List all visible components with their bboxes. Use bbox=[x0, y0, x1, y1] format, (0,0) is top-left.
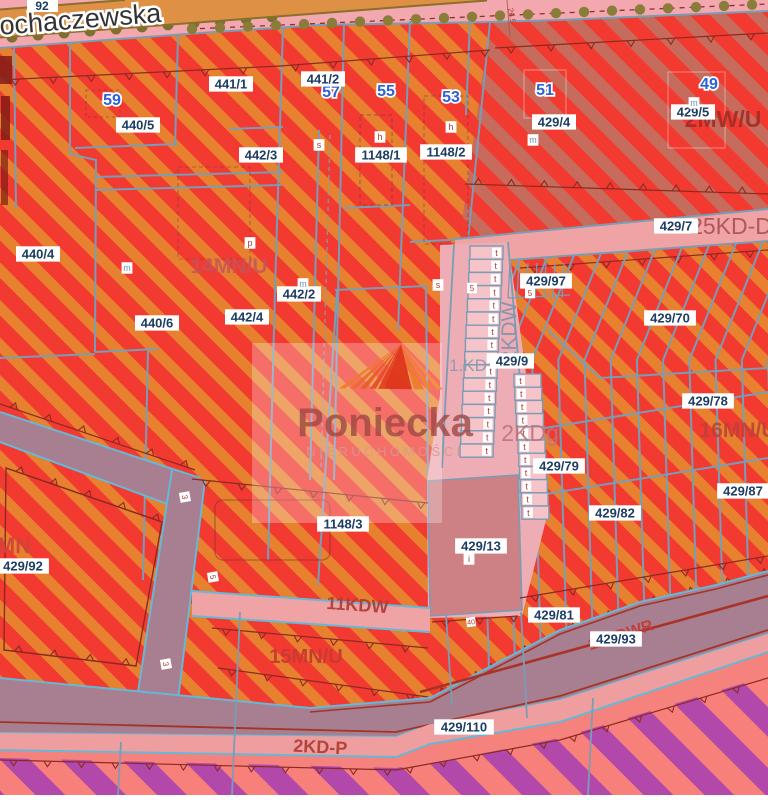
svg-text:429/9: 429/9 bbox=[496, 354, 529, 369]
svg-text:51: 51 bbox=[536, 82, 554, 99]
svg-text:429/13: 429/13 bbox=[461, 539, 501, 554]
svg-text:429/93: 429/93 bbox=[596, 632, 636, 647]
svg-text:s: s bbox=[436, 280, 441, 290]
svg-text:16MN/U: 16MN/U bbox=[699, 419, 768, 442]
svg-text:14MN/U: 14MN/U bbox=[190, 255, 267, 278]
svg-text:59: 59 bbox=[103, 92, 121, 109]
svg-text:5: 5 bbox=[528, 289, 533, 298]
svg-text:5: 5 bbox=[470, 284, 475, 293]
svg-text:429/70: 429/70 bbox=[650, 311, 690, 326]
svg-text:m: m bbox=[690, 98, 698, 108]
svg-text:441/1: 441/1 bbox=[215, 77, 248, 92]
svg-text:2KDg: 2KDg bbox=[501, 420, 559, 446]
svg-text:1148/2: 1148/2 bbox=[426, 145, 465, 160]
svg-text:m: m bbox=[123, 263, 131, 273]
svg-text:429/79: 429/79 bbox=[539, 459, 579, 474]
svg-text:429/81: 429/81 bbox=[534, 608, 574, 623]
svg-text:53: 53 bbox=[442, 89, 460, 106]
svg-text:49: 49 bbox=[700, 76, 718, 93]
svg-text:h: h bbox=[448, 122, 453, 132]
svg-text:429/110: 429/110 bbox=[441, 720, 487, 735]
svg-text:NIERUCHOMOŚCI: NIERUCHOMOŚCI bbox=[306, 444, 463, 459]
svg-text:441/2: 441/2 bbox=[307, 72, 340, 87]
svg-text:40: 40 bbox=[467, 619, 476, 627]
svg-text:s: s bbox=[317, 140, 322, 150]
svg-text:55: 55 bbox=[377, 83, 395, 100]
svg-text:429/87: 429/87 bbox=[723, 484, 763, 499]
svg-text:429/82: 429/82 bbox=[595, 506, 635, 521]
svg-text:2KD-P: 2KD-P bbox=[293, 736, 348, 759]
svg-text:25KD-D: 25KD-D bbox=[690, 213, 768, 239]
svg-text:429/7: 429/7 bbox=[660, 219, 693, 234]
svg-text:440/6: 440/6 bbox=[141, 316, 174, 331]
svg-text:429/4: 429/4 bbox=[538, 115, 571, 130]
svg-text:442/4: 442/4 bbox=[231, 310, 264, 325]
svg-text:440/5: 440/5 bbox=[122, 118, 155, 133]
svg-text:p: p bbox=[247, 238, 252, 248]
svg-text:429/78: 429/78 bbox=[688, 394, 728, 409]
svg-text:442/3: 442/3 bbox=[245, 148, 278, 163]
svg-text:429/97: 429/97 bbox=[526, 274, 566, 289]
svg-text:1.KD: 1.KD bbox=[449, 356, 487, 375]
svg-text:MN: MN bbox=[0, 533, 31, 558]
svg-text:Poniecka: Poniecka bbox=[297, 401, 473, 445]
svg-text:429/92: 429/92 bbox=[3, 559, 43, 574]
svg-text:1148/3: 1148/3 bbox=[323, 517, 362, 532]
svg-text:i: i bbox=[468, 554, 470, 564]
svg-text:1148/1: 1148/1 bbox=[361, 148, 400, 163]
svg-text:h: h bbox=[377, 132, 382, 142]
svg-text:440/4: 440/4 bbox=[22, 247, 55, 262]
svg-text:m: m bbox=[299, 279, 307, 289]
svg-text:m: m bbox=[529, 135, 537, 145]
svg-text:15MN/U: 15MN/U bbox=[269, 646, 342, 668]
